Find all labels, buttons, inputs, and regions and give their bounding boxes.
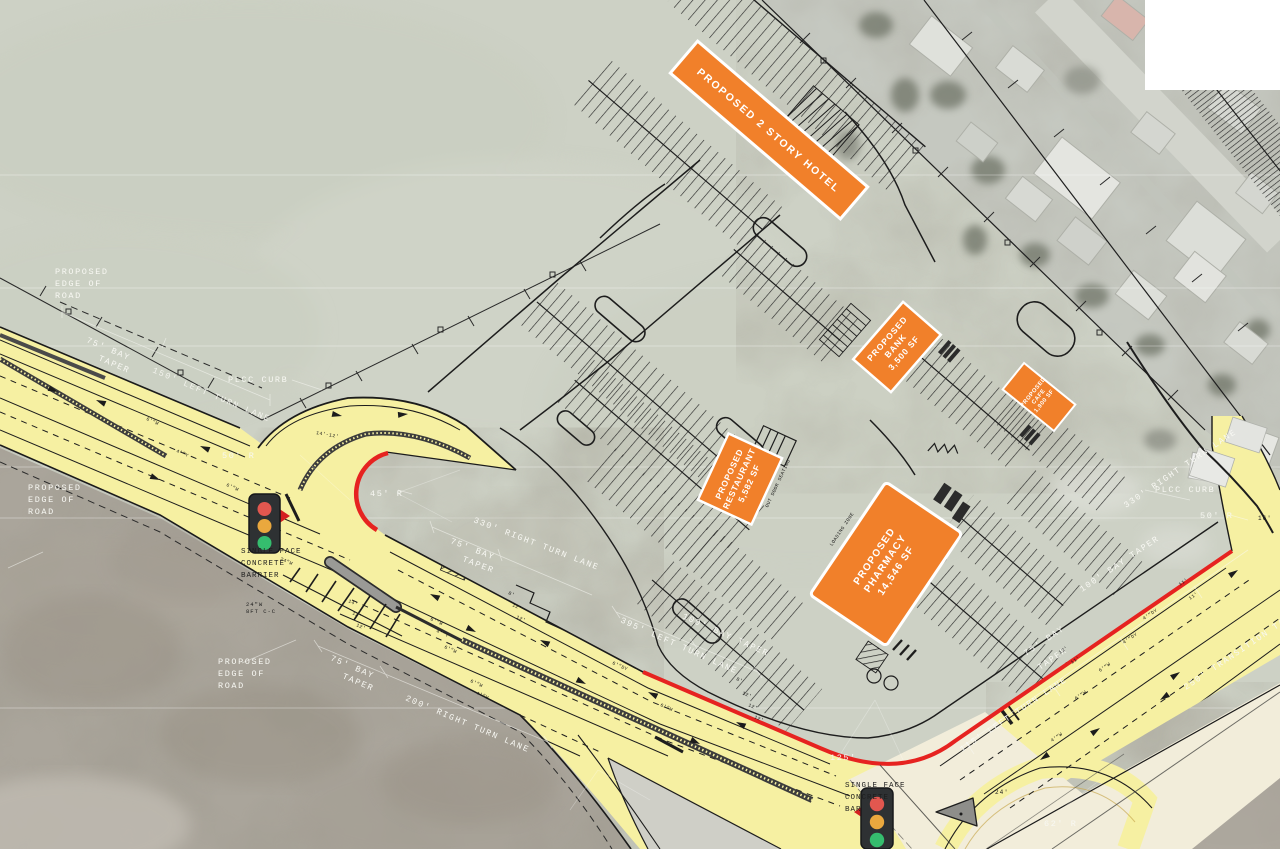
svg-text:PLCC CURB: PLCC CURB <box>228 375 288 385</box>
svg-text:50' R: 50' R <box>222 451 256 461</box>
svg-text:BARRIER: BARRIER <box>241 572 280 580</box>
svg-text:SINGLE FACE: SINGLE FACE <box>845 782 906 790</box>
svg-text:PROPOSED: PROPOSED <box>28 483 82 493</box>
svg-text:24"W: 24"W <box>246 601 263 608</box>
svg-text:EDGE OF: EDGE OF <box>28 495 75 505</box>
svg-text:BAR: BAR <box>845 806 862 814</box>
svg-text:ROAD: ROAD <box>55 291 82 301</box>
svg-text:CONCRETE: CONCRETE <box>845 794 889 802</box>
svg-text:8FT C-C: 8FT C-C <box>246 608 276 615</box>
svg-text:62' R: 62' R <box>1044 819 1078 829</box>
svg-text:125': 125' <box>830 753 857 763</box>
svg-text:50' R: 50' R <box>1200 511 1234 521</box>
svg-text:ROAD: ROAD <box>28 507 55 517</box>
svg-text:PROPOSED: PROPOSED <box>218 657 272 667</box>
svg-text:PLCC CURB: PLCC CURB <box>1155 485 1215 495</box>
svg-text:SINGLE FACE: SINGLE FACE <box>241 548 302 556</box>
svg-text:EDGE OF: EDGE OF <box>55 279 102 289</box>
svg-text:16': 16' <box>1258 515 1272 522</box>
svg-text:EDGE OF: EDGE OF <box>218 669 265 679</box>
svg-text:ROAD: ROAD <box>218 681 245 691</box>
svg-text:PROPOSED: PROPOSED <box>55 267 109 277</box>
svg-text:45' R: 45' R <box>370 489 404 499</box>
svg-text:24': 24' <box>995 789 1009 796</box>
svg-text:CONCRETE: CONCRETE <box>241 560 285 568</box>
